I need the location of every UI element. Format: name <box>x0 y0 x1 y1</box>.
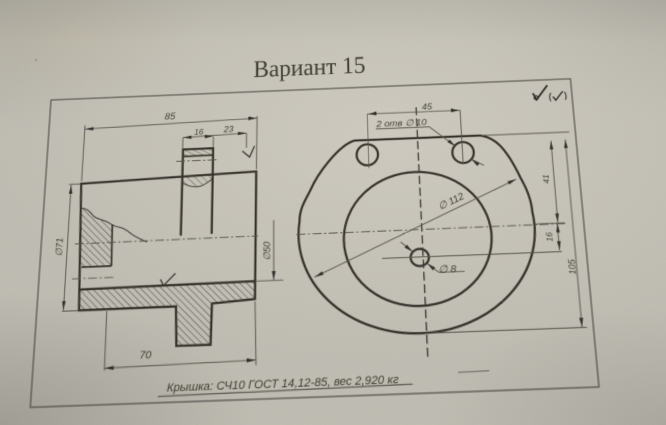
svg-text:Вариант 15: Вариант 15 <box>253 52 365 83</box>
svg-text:23: 23 <box>223 124 234 134</box>
svg-text:∅ 8: ∅ 8 <box>438 263 458 275</box>
svg-text:∅71: ∅71 <box>53 237 65 256</box>
svg-text:70: 70 <box>139 349 152 361</box>
svg-text:2 отв ∅ 10: 2 отв ∅ 10 <box>375 117 427 130</box>
svg-text:Крышка: СЧ10 ГОСТ 14,12-85, ве: Крышка: СЧ10 ГОСТ 14,12-85, вес 2,920 кг <box>166 374 398 396</box>
svg-text:16: 16 <box>194 127 204 137</box>
svg-text:∅ 112: ∅ 112 <box>436 190 465 212</box>
svg-text:∅50: ∅50 <box>261 241 272 261</box>
svg-text:45: 45 <box>422 101 433 112</box>
svg-text:85: 85 <box>164 111 175 122</box>
svg-text:105: 105 <box>566 258 578 274</box>
svg-text:16: 16 <box>544 231 555 242</box>
svg-text:41: 41 <box>541 174 552 184</box>
